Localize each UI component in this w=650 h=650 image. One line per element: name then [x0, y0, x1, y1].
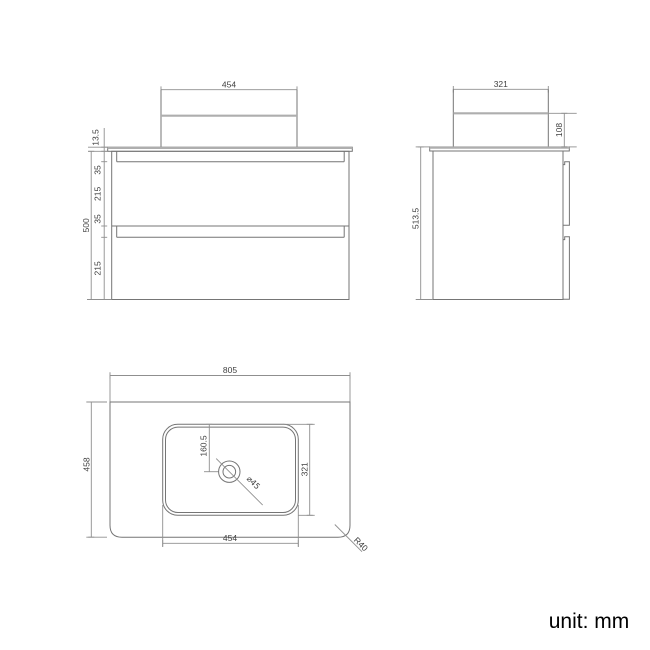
vanity-dimension-drawing: 454 13.5 35 215 35 215: [0, 0, 650, 650]
dim-plan-basin-offset: 160.5: [198, 435, 208, 457]
technical-drawing-page: 454 13.5 35 215 35 215: [0, 0, 650, 650]
front-view: 454 13.5 35 215 35 215: [81, 80, 352, 300]
dim-front-worktop-thickness: 13.5: [91, 129, 101, 146]
dim-front-gap-bottom: 35: [93, 214, 103, 224]
dim-side-basin-height: 108: [554, 123, 564, 137]
side-drawer2-front: [563, 237, 569, 299]
side-view: 321 108 513.5: [410, 79, 576, 300]
dim-plan-drain-diameter: ⌀45: [245, 474, 262, 491]
front-cabinet-outline: [112, 151, 349, 299]
dim-plan-worktop-depth: 458: [81, 457, 91, 471]
plan-worktop-outline: [110, 402, 350, 537]
dim-side-basin-depth: 321: [494, 79, 508, 89]
dim-side-overall-height: 513.5: [410, 208, 420, 230]
dim-front-gap-top: 35: [93, 165, 103, 175]
dim-front-drawer-top: 215: [93, 187, 103, 201]
plan-basin-outer: [163, 424, 299, 515]
dim-front-cabinet-height: 500: [81, 218, 91, 232]
unit-note: unit: mm: [549, 610, 630, 633]
dim-front-drawer-bottom: 215: [93, 261, 103, 275]
side-drawer1-front: [563, 162, 569, 226]
dim-plan-basin-width: 454: [223, 533, 237, 543]
dim-front-basin-width: 454: [222, 80, 236, 90]
dim-plan-worktop-width: 805: [223, 365, 237, 375]
side-cabinet-outline: [433, 151, 563, 300]
plan-view: 805 458 160.5 ⌀45 321: [81, 365, 370, 553]
dim-plan-corner-radius: R40: [352, 535, 370, 553]
dim-plan-basin-depth: 321: [300, 462, 310, 476]
plan-basin-inner: [166, 427, 296, 512]
